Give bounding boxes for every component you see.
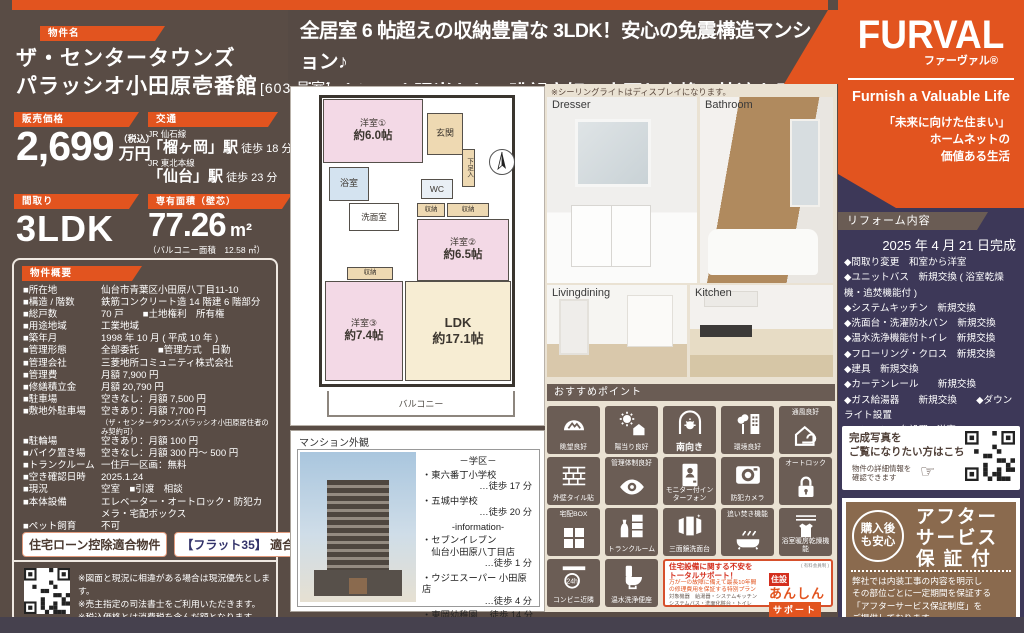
feature-icon-camera: 防犯カメラ xyxy=(721,457,774,505)
reform-item: ◆温水洗浄機能付トイレ 新規交換 xyxy=(844,331,1020,346)
pointing-hand-icon: ☞ xyxy=(920,462,935,482)
google-map-qr-code xyxy=(24,568,70,614)
feature-icon-monitor: モニター付インターフォン xyxy=(663,457,716,505)
feature-icon-wind: 通風良好 xyxy=(779,406,832,454)
exterior-label: マンション外観 xyxy=(299,434,369,449)
exterior-section: マンション外観 －学区－・東六番丁小学校…徒歩 17 分・五城中学校…徒歩 20… xyxy=(290,430,545,612)
closet-3: 収納 xyxy=(347,267,393,280)
catchphrase: 全居室 6 帖超えの収納豊富な 3LDK！安心の免震構造マンション♪ 南向きにつ… xyxy=(288,10,828,84)
feature-icon-brick: 外壁タイル貼 xyxy=(547,457,600,505)
access-label: 交通 xyxy=(148,112,278,127)
catchphrase-line1: 全居室 6 帖超えの収納豊富な 3LDK！安心の免震構造マンション♪ xyxy=(300,16,828,78)
trunk-icon xyxy=(617,511,647,541)
feature-icon-label: 温水洗浄便座 xyxy=(605,597,658,605)
after-service-circle-badge: 購入後 も安心 xyxy=(852,510,904,562)
after-service-title: アフターサービス保 証 付 xyxy=(916,506,998,569)
feature-icon-label: 外壁タイル貼 xyxy=(547,495,600,503)
reform-item: ◆洗面台・洗濯防水パン 新規交換 xyxy=(844,316,1020,331)
room-washroom: 洗面室 xyxy=(349,203,399,231)
dryer-icon xyxy=(791,511,821,541)
feature-icon-grid: 眺望良好陽当り良好南向き環境良好通風良好外壁タイル貼管理体制良好モニター付インタ… xyxy=(545,84,837,612)
room-yoshitsu3: 洋室③約7.4帖 xyxy=(325,281,403,381)
decorative-triangle xyxy=(838,174,896,208)
area-unit: m² xyxy=(230,220,252,240)
room-yoshitsu1: 洋室①約6.0帖 xyxy=(323,99,423,163)
feature-icon-label: 陽当り良好 xyxy=(605,444,658,452)
station-walk: 「仙台」駅 徒歩 23 分 xyxy=(148,168,292,187)
closet-2: 収納 xyxy=(447,203,489,217)
overview-row: ■空き確認日時2025.1.24 xyxy=(23,472,271,484)
south-icon xyxy=(675,409,705,439)
overview-row: ■管理形態全部委託 ■管理方式 日勤 xyxy=(23,345,271,357)
price: 2,699 （税込） 万円 xyxy=(16,126,155,167)
feature-icon-label: 環境良好 xyxy=(721,444,774,452)
brand-block: FURVAL ファーヴァル® Furnish a Valuable Life 「… xyxy=(838,0,1024,208)
support-badge-text: 住宅設備に関する不安を トータルサポート！ 万が一の故障に備えて最長10年間 の… xyxy=(665,561,769,605)
overview-row: ■管理会社三菱地所コミュニティ株式会社 xyxy=(23,358,271,370)
wind-icon xyxy=(791,421,821,451)
tub-icon xyxy=(733,523,763,553)
reform-item: ◆ガス給湯器 新規交換 ◆ダウンライト設置 xyxy=(844,393,1020,424)
station-walk: 「榴ヶ岡」駅 徒歩 18 分 xyxy=(148,139,292,158)
furval-logo: FURVAL xyxy=(838,12,1024,57)
sun-icon xyxy=(617,409,647,439)
balcony: バルコニー xyxy=(327,391,515,417)
overview-row-note: （ザ・センタータウンズパラッシオ小田原居住者のみ契約可） xyxy=(23,418,271,436)
feature-icon-dryer: 浴室暖房乾燥機能 xyxy=(779,508,832,556)
after-service-box: 購入後 も安心 アフターサービス保 証 付 弊社では内装工事の内容を明示しその部… xyxy=(842,498,1020,628)
balcony-area-note: （バルコニー面積 12.58 ㎡） xyxy=(148,244,265,256)
brick-icon xyxy=(559,460,589,490)
rail-line-name: JR 東北本線 xyxy=(148,158,292,168)
feature-icon-tub: 追い焚き機能 xyxy=(721,508,774,556)
room-wc: WC xyxy=(421,179,453,199)
divider xyxy=(848,78,1014,80)
feature-icon-label: 防犯カメラ xyxy=(721,495,774,503)
property-overview-box: 物件概要 ■所在地仙台市青葉区小田原八丁目11-10■構造 / 階数鉄筋コンクリ… xyxy=(12,258,278,624)
overview-row: ■敷地外駐車場空きあり：月額 7,700 円 xyxy=(23,406,271,418)
reform-label: リフォーム内容 xyxy=(838,212,988,230)
building-entrance xyxy=(349,578,367,594)
feature-icon-c24: 24hコンビニ近隣 xyxy=(547,559,600,607)
livingdining-photo-label: Livingdining xyxy=(552,287,610,299)
room-yoshitsu2: 洋室②約6.5帖 xyxy=(417,219,509,281)
completion-photo-text: 完成写真を ご覧になりたい方はこちら xyxy=(849,432,975,459)
feature-icon-label: 管理体制良好 xyxy=(605,460,658,468)
feature-icon-trunk: トランクルーム xyxy=(605,508,658,556)
reform-item: ◆建具 新規交換 xyxy=(844,362,1020,377)
overview-row: ■ペット飼育不可 xyxy=(23,521,271,533)
feature-icon-label: 追い焚き機能 xyxy=(721,511,774,519)
lock-icon xyxy=(791,472,821,502)
feature-icon-label: トランクルーム xyxy=(605,546,658,554)
overview-row: ■総戸数70 戸 ■土地権利 所有権 xyxy=(23,309,271,321)
equipment-support-badge: 住宅設備に関する不安を トータルサポート！ 万が一の故障に備えて最長10年間 の… xyxy=(663,559,833,607)
overview-row: ■築年月1998 年 10 月 ( 平成 10 年 ) xyxy=(23,333,271,345)
real-estate-flyer: 全居室 6 帖超えの収納豊富な 3LDK！安心の免震構造マンション♪ 南向きにつ… xyxy=(0,0,1024,633)
layout-value: 3LDK xyxy=(16,208,114,250)
feature-icon-south: 南向き xyxy=(663,406,716,454)
loan-deduction-badge: 住宅ローン控除適合物件 xyxy=(22,532,167,557)
feature-icon-mirror: 三面鏡洗面台 xyxy=(663,508,716,556)
overview-row: ■修繕積立金月額 20,790 円 xyxy=(23,382,271,394)
eye-icon xyxy=(617,472,647,502)
detail-info-text: 物件の詳細情報を 確認できます xyxy=(852,464,911,482)
c24-icon: 24h xyxy=(559,562,589,592)
room-ldk: LDK約17.1帖 xyxy=(405,281,511,381)
reform-item: ◆間取り変更 和室から洋室 xyxy=(844,255,1020,270)
reform-item: ◆システムキッチン 新規交換 xyxy=(844,301,1020,316)
bottom-accent-bar xyxy=(0,617,1024,633)
closet-1: 収納 xyxy=(417,203,445,217)
feature-icon-label: 三面鏡洗面台 xyxy=(663,546,716,554)
top-accent-bar xyxy=(12,0,828,10)
reform-panel: リフォーム内容 2025 年 4 月 21 日完成 ◆間取り変更 和室から洋室◆… xyxy=(838,208,1024,633)
access-info: JR 仙石線「榴ヶ岡」駅 徒歩 18 分JR 東北本線「仙台」駅 徒歩 23 分 xyxy=(148,129,292,187)
reform-item: ◆フローリング・クロス 新規交換 xyxy=(844,347,1020,362)
feature-icon-env: 環境良好 xyxy=(721,406,774,454)
overview-row: ■構造 / 階数鉄筋コンクリート造 14 階建 6 階部分 xyxy=(23,297,271,309)
feature-icon-label: 通風良好 xyxy=(779,409,832,417)
box-icon xyxy=(559,523,589,553)
dotted-divider xyxy=(851,570,1011,572)
monitor-icon xyxy=(675,460,705,490)
overview-row: ■トランクルーム一住戸一区画：無料 xyxy=(23,460,271,472)
property-name-label: 物件名 xyxy=(40,26,165,41)
layout-label: 間取り xyxy=(14,194,139,209)
area-value: 77.26 m² xyxy=(148,206,252,244)
property-name-line1: ザ・センタータウンズ xyxy=(16,42,236,72)
reform-items-list: ◆間取り変更 和室から洋室◆ユニットバス 新規交換 ( 浴室乾燥機・追焚機能付 … xyxy=(844,255,1020,454)
feature-icon-label: モニター付インターフォン xyxy=(663,487,716,502)
feature-icon-label: オートロック xyxy=(779,460,832,468)
reform-item: ◆ユニットバス 新規交換 ( 浴室乾燥機・追焚機能付 ) xyxy=(844,270,1020,301)
price-unit: 万円 xyxy=(119,146,151,163)
overview-row: ■本体設備エレベーター・オートロック・防犯カメラ・宅配ボックス xyxy=(23,497,271,521)
headline-zone: 全居室 6 帖超えの収納豊富な 3LDK！安心の免震構造マンション♪ 南向きにつ… xyxy=(288,10,838,84)
compass-icon xyxy=(487,147,517,177)
overview-row: ■所在地仙台市青葉区小田原八丁目11-10 xyxy=(23,285,271,297)
brand-tagline: 「未来に向けた住まい」ホームネットの価値ある生活 xyxy=(838,115,1024,166)
completion-photo-qr-code xyxy=(965,431,1015,481)
overview-table: ■所在地仙台市青葉区小田原八丁目11-10■構造 / 階数鉄筋コンクリート造 1… xyxy=(23,285,271,533)
overview-row: ■管理費月額 7,900 円 xyxy=(23,370,271,382)
photos-panel: ※シーリングライトはディスプレイになります。 Dresser Bathroom … xyxy=(545,84,837,612)
feature-icon-label: 南向き xyxy=(663,444,716,452)
room-shoe-storage: 下足入 xyxy=(462,149,475,187)
overview-row: ■駐輪場空きあり：月額 100 円 xyxy=(23,436,271,448)
kitchen-photo-label: Kitchen xyxy=(695,287,732,299)
reform-completion-date: 2025 年 4 月 21 日完成 xyxy=(882,235,1016,254)
exterior-frame: －学区－・東六番丁小学校…徒歩 17 分・五城中学校…徒歩 20 分-infor… xyxy=(297,449,540,607)
brand-slogan: Furnish a Valuable Life xyxy=(838,89,1024,105)
feature-icon-label: 眺望良好 xyxy=(547,444,600,452)
support-badge-brand: ( 有料会員制 ) 住設 あんしん サポート xyxy=(769,561,831,605)
feature-icon-eye: 管理体制良好 xyxy=(605,457,658,505)
feature-icon-view: 眺望良好 xyxy=(547,406,600,454)
overview-row: ■バイク置き場空きなし：月額 300 円～ 500 円 xyxy=(23,448,271,460)
feature-icon-toilet: 温水洗浄便座 xyxy=(605,559,658,607)
rail-line-name: JR 仙石線 xyxy=(148,129,292,139)
mirror-icon xyxy=(675,511,705,541)
after-service-inner: 購入後 も安心 アフターサービス保 証 付 弊社では内装工事の内容を明示しその部… xyxy=(846,502,1016,624)
camera-icon xyxy=(733,460,763,490)
building-photo xyxy=(300,452,416,602)
overview-row: ■用途地域工業地域 xyxy=(23,321,271,333)
loan-badges: 住宅ローン控除適合物件 【フラット35】 適合物件 xyxy=(22,532,325,557)
overview-row: ■駐車場空きなし：月額 7,500 円 xyxy=(23,394,271,406)
room-bath: 浴室 xyxy=(329,167,369,201)
floor-plan: 洋室①約6.0帖 玄関 下足入 浴室 洗面室 WC 収納 収納 洋室②約6.5帖… xyxy=(290,86,545,426)
room-genkan: 玄関 xyxy=(427,113,463,155)
overview-label: 物件概要 xyxy=(22,266,142,281)
view-icon xyxy=(559,409,589,439)
bathroom-photo-label: Bathroom xyxy=(705,99,753,111)
feature-icon-label: 浴室暖房乾燥機能 xyxy=(779,538,832,553)
price-value: 2,699 xyxy=(16,126,114,167)
feature-icon-label: コンビニ近隣 xyxy=(547,597,600,605)
feature-icon-label: 宅配BOX xyxy=(547,511,600,519)
divider xyxy=(14,560,276,562)
dresser-photo-label: Dresser xyxy=(552,99,591,111)
svg-text:24h: 24h xyxy=(566,578,578,585)
property-name-line2: パラッシオ小田原壱番館[603 号室] xyxy=(16,70,331,100)
env-icon xyxy=(733,409,763,439)
building-tower xyxy=(327,480,389,574)
reform-item: ◆カーテンレール 新規交換 xyxy=(844,377,1020,392)
neighborhood-info: －学区－・東六番丁小学校…徒歩 17 分・五城中学校…徒歩 20 分-infor… xyxy=(422,454,534,622)
feature-icon-box: 宅配BOX xyxy=(547,508,600,556)
overview-row: ■現況空室 ■引渡 相談 xyxy=(23,484,271,496)
completion-photo-qr-box: 完成写真を ご覧になりたい方はこちら 物件の詳細情報を 確認できます ☞ xyxy=(842,426,1020,490)
feature-icon-sun: 陽当り良好 xyxy=(605,406,658,454)
toilet-icon xyxy=(617,562,647,592)
feature-icon-lock: オートロック xyxy=(779,457,832,505)
